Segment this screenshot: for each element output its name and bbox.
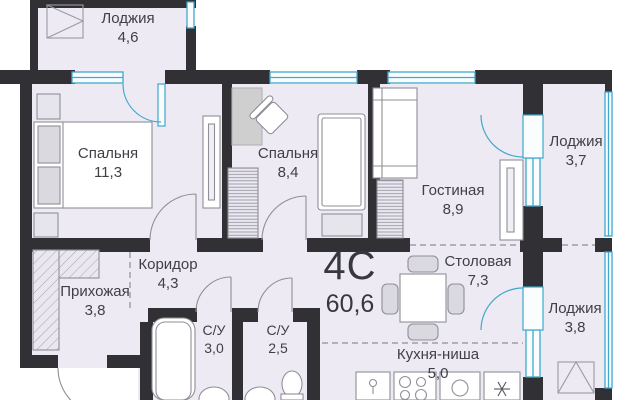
room-label-bedroom-1: Спальня 11,3 (78, 145, 138, 183)
sofa-icon (373, 88, 417, 178)
apartment-type: 4С (323, 246, 376, 286)
wardrobe-icon (203, 116, 220, 208)
apartment-total-area: 60,6 (323, 291, 376, 319)
single-bed-icon (318, 114, 365, 210)
room-label-hall: Прихожая 3,8 (60, 283, 130, 321)
room-label-loggia-right-bottom: Лоджия 3,8 (548, 300, 601, 338)
toilet-icon (281, 371, 303, 400)
room-label-bathroom-2: С/У 2,5 (267, 322, 290, 357)
room-label-loggia-right-top: Лоджия 3,7 (549, 133, 602, 171)
floor-plan-page: Лоджия 4,6 Спальня 11,3 Спальня 8,4 Гост… (0, 0, 640, 400)
wardrobe-icon (500, 160, 523, 240)
exterior-area (0, 368, 138, 400)
room-label-dining: Столовая 7,3 (444, 253, 511, 291)
room-label-corridor: Коридор 4,3 (138, 256, 197, 294)
room-label-living: Гостиная 8,9 (422, 182, 485, 220)
wardrobe-hatched-icon (377, 180, 403, 238)
floor-plan-drawing (0, 0, 640, 400)
apartment-type-label: 4С 60,6 (323, 246, 376, 319)
nightstand-icon (322, 214, 362, 236)
nightstand-icon (34, 213, 58, 237)
window (187, 2, 194, 28)
room-label-loggia-top: Лоджия 4,6 (101, 10, 154, 48)
dining-table-icon (400, 274, 446, 322)
room-label-kitchen: Кухня-ниша 5,0 (397, 346, 479, 384)
fridge-icon (484, 372, 520, 400)
room-label-bedroom-2: Спальня 8,4 (258, 145, 318, 183)
room-label-bathroom-1: С/У 3,0 (203, 322, 226, 357)
bathtub-icon (152, 318, 195, 400)
nightstand-icon (37, 94, 60, 119)
wardrobe-hatched-icon (228, 168, 258, 238)
